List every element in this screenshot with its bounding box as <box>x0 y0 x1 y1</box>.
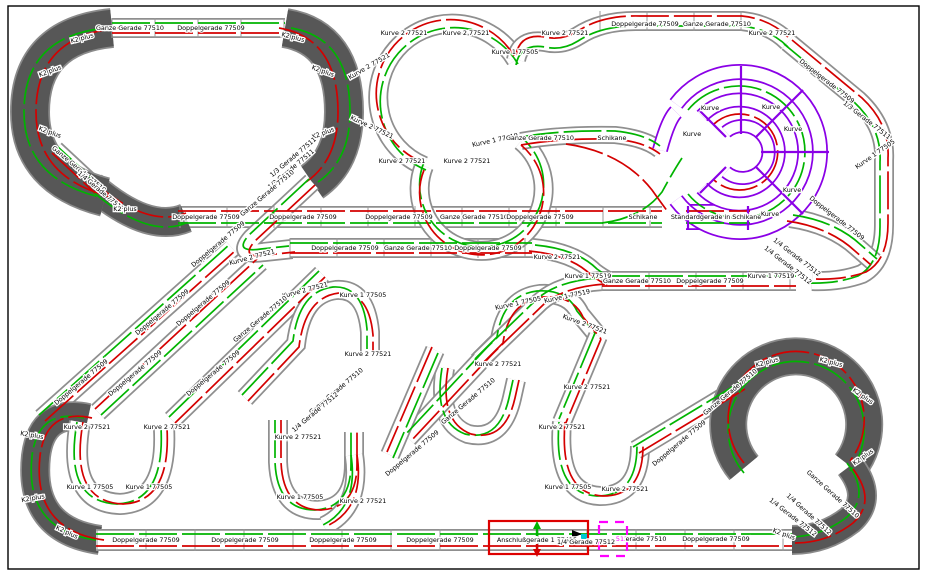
piece-label: Kurve 2 77521 <box>749 29 796 37</box>
piece-label: Ganze Gerade 77510 <box>683 20 751 28</box>
piece-label: Doppelgerade 77509 <box>211 536 279 544</box>
piece-label: Kurve 1 77505 <box>492 48 539 56</box>
piece-label: Kurve <box>784 125 802 133</box>
piece-label: Doppelgerade 77509 <box>177 24 245 32</box>
piece-label: Doppelgerade 77509 <box>309 536 377 544</box>
piece-label: Doppelgerade 77509 <box>682 535 750 543</box>
piece-label: Ganze Gerade 77510 <box>506 134 574 142</box>
piece-label: Doppelgerade 77509 <box>172 213 240 221</box>
piece-label: Kurve 2 77521 <box>275 433 322 441</box>
piece-label: Kurve 1 77505 <box>545 483 592 491</box>
piece-label: Kurve 2 77521 <box>539 423 586 431</box>
piece-label: Doppelgerade 77509 <box>506 213 574 221</box>
piece-label: Kurve 1 77505 <box>277 493 324 501</box>
piece-label: Standardgerade in Schikane <box>671 213 761 221</box>
piece-label: Ganze Gerade 77510 <box>440 213 508 221</box>
piece-label: Kurve 2 77521 <box>379 157 426 165</box>
track-plan-canvas: Ganze Gerade 77510Doppelgerade 77509K2 p… <box>0 0 927 577</box>
piece-label: Kurve 2 77521 <box>564 383 611 391</box>
piece-label: Kurve 2 77521 <box>602 485 649 493</box>
piece-label: Kurve 2 77521 <box>144 423 191 431</box>
piece-label: Doppelgerade 77509 <box>406 536 474 544</box>
piece-label: Doppelgerade 77509 <box>112 536 180 544</box>
piece-label: Ganze Gerade 77510 <box>96 24 164 32</box>
piece-label: Ganze Gerade 77510 <box>384 244 452 252</box>
piece-label: Kurve 2 77521 <box>444 157 491 165</box>
piece-label: Kurve 2 77521 <box>534 253 581 261</box>
piece-label: Kurve <box>761 210 779 218</box>
piece-label: Kurve <box>762 103 780 111</box>
piece-label: Doppelgerade 77509 <box>269 213 337 221</box>
piece-label: Kurve <box>783 186 801 194</box>
piece-label: Kurve 2 77521 <box>381 29 428 37</box>
piece-label: Schikane <box>629 213 658 221</box>
piece-label: Doppelgerade 77509 <box>676 277 744 285</box>
piece-label: Kurve <box>701 104 719 112</box>
piece-label: Kurve 2 77521 <box>443 29 490 37</box>
piece-label: Kurve 1 77519 <box>748 272 795 280</box>
track-plan-svg: Ganze Gerade 77510Doppelgerade 77509K2 p… <box>0 0 927 577</box>
piece-label: Kurve 2 77521 <box>345 350 392 358</box>
piece-label: Kurve 1 77505 <box>126 483 173 491</box>
piece-label: erade 77510 <box>626 535 667 543</box>
piece-label: Kurve 1 77505 <box>340 291 387 299</box>
piece-label: 1/4 Gerade 77512 <box>557 538 615 546</box>
piece-label: Doppelgerade 77509 <box>611 20 679 28</box>
piece-label: Ganze Gerade 77510 <box>603 277 671 285</box>
piece-label: Kurve 1 77505 <box>67 483 114 491</box>
piece-label: Doppelgerade 77509 <box>454 244 522 252</box>
piece-label: Doppelgerade 77509 <box>311 244 379 252</box>
piece-label: Doppelgerade 77509 <box>365 213 433 221</box>
piece-label: Kurve 2 77521 <box>340 497 387 505</box>
piece-label: Schikane <box>598 134 627 142</box>
piece-label: Kurve <box>683 130 701 138</box>
piece-label: Kurve 2 77521 <box>475 360 522 368</box>
piece-label: K2 plus <box>113 205 137 213</box>
piece-label: Kurve 2 77521 <box>542 29 589 37</box>
piece-label: Kurve 2 77521 <box>64 423 111 431</box>
